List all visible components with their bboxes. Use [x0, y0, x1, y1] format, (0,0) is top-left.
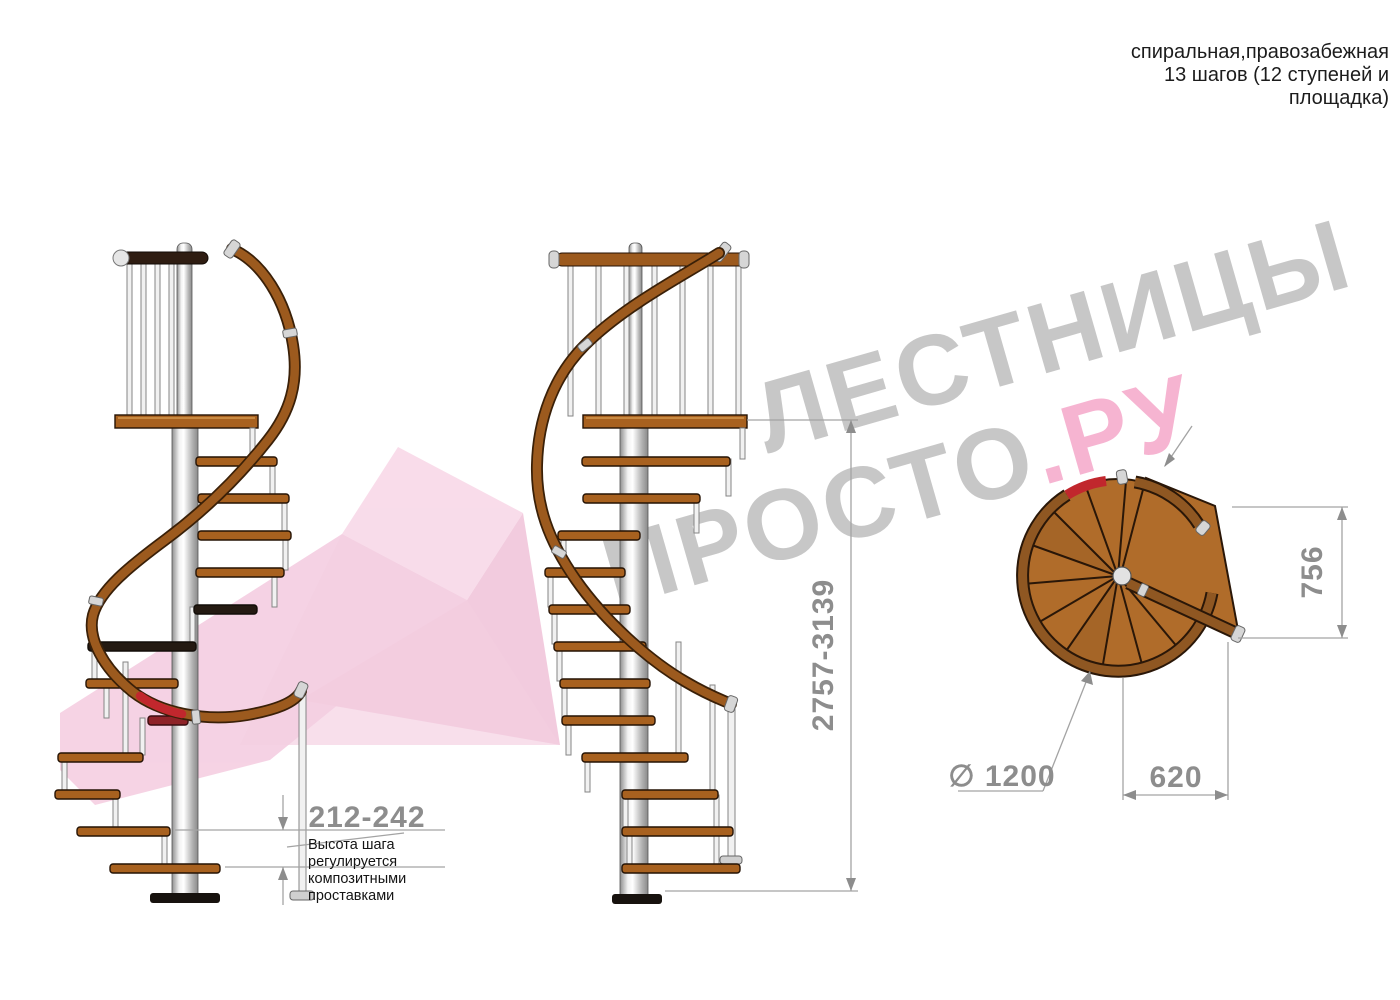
plan-width-value: 620 — [1149, 761, 1202, 794]
entry-post — [299, 690, 306, 893]
step — [562, 716, 655, 725]
handrail-sleeve — [282, 328, 297, 338]
center-pole — [172, 420, 198, 896]
step — [198, 531, 291, 540]
plan-diameter-value: ∅ 1200 — [948, 760, 1055, 793]
step — [582, 457, 730, 466]
note-line: Высота шага — [308, 837, 395, 853]
step — [545, 568, 625, 577]
plan-center-pole — [1113, 567, 1131, 585]
header-caption: спиральная,правозабежная 13 шагов (12 ст… — [1131, 41, 1389, 109]
technical-drawing: ЛЕСТНИЦЫ ПРОСТО.РУ — [0, 0, 1400, 1000]
top-view — [1021, 469, 1246, 673]
step — [622, 790, 718, 799]
platform-handrail-dark — [116, 252, 208, 264]
plan-rail-cap — [1116, 469, 1128, 485]
step-height-value: 212-242 — [308, 801, 425, 834]
pole-upper — [629, 243, 642, 423]
pole-upper — [177, 243, 192, 423]
step-height-note: Высота шага регулируется композитными пр… — [308, 837, 406, 904]
handrail-cap — [549, 251, 559, 268]
note-line: регулируется — [308, 854, 397, 870]
platform-board — [583, 415, 747, 428]
plan-depth-value: 756 — [1296, 545, 1329, 598]
caption-line-2: 13 шагов (12 ступеней и — [1164, 64, 1389, 86]
caption-line-1: спиральная,правозабежная — [1131, 41, 1389, 63]
note-line: проставками — [308, 888, 394, 904]
platform-board — [115, 415, 258, 428]
step — [110, 864, 220, 873]
handrail-cap — [739, 251, 749, 268]
base-flange — [150, 893, 220, 903]
handrail-sleeve — [191, 710, 200, 725]
handrail-ball-cap — [113, 250, 129, 266]
step — [58, 753, 143, 762]
platform-railing — [549, 241, 749, 416]
step — [196, 457, 277, 466]
caption-line-3: площадка) — [1289, 87, 1389, 109]
step — [558, 531, 640, 540]
step — [194, 605, 257, 614]
dimension-step-height: 212-242 Высота шага регулируется компози… — [175, 795, 445, 905]
base-flange — [612, 894, 662, 904]
step — [77, 827, 170, 836]
step — [196, 568, 284, 577]
step — [55, 790, 120, 799]
step — [582, 753, 688, 762]
watermark-pink-arrow — [60, 447, 560, 805]
entry-post-foot — [720, 856, 742, 864]
platform-railing — [113, 250, 208, 417]
total-height-value: 2757-3139 — [807, 579, 840, 731]
drawing-page: ЛЕСТНИЦЫ ПРОСТО.РУ — [0, 0, 1400, 1000]
note-line: композитными — [308, 871, 406, 887]
step — [622, 864, 740, 873]
dimension-plan-depth: 756 — [1232, 507, 1348, 638]
step — [560, 679, 650, 688]
step — [583, 494, 700, 503]
dimension-diameter: ∅ 1200 — [948, 671, 1093, 793]
step — [622, 827, 733, 836]
